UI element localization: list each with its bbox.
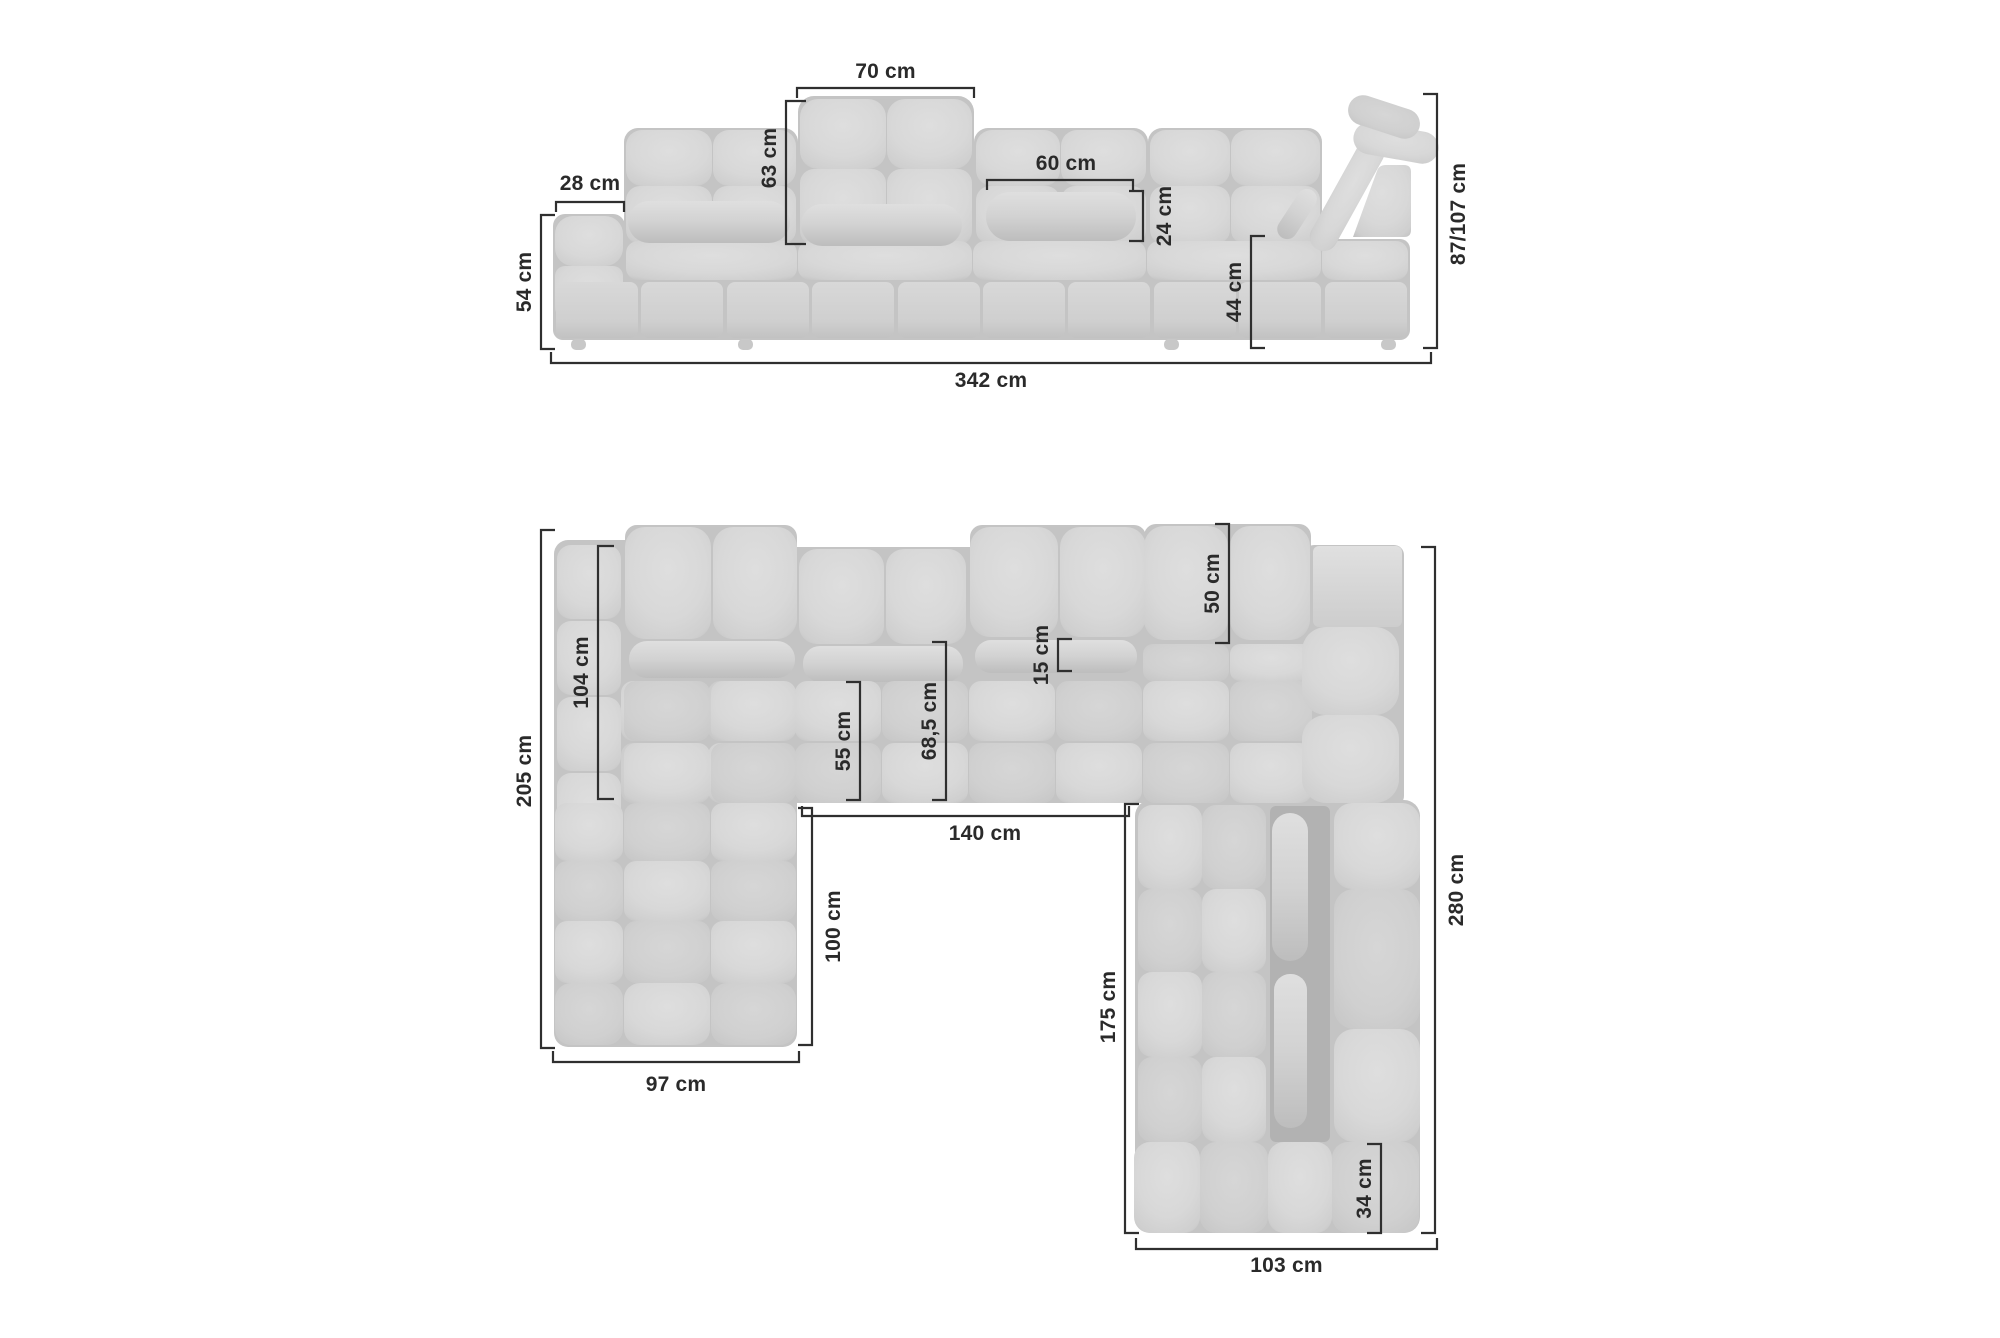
svg-text:54 cm: 54 cm xyxy=(513,252,536,313)
svg-text:70 cm: 70 cm xyxy=(855,60,916,83)
svg-text:175 cm: 175 cm xyxy=(1097,971,1120,1043)
svg-text:68,5 cm: 68,5 cm xyxy=(918,682,941,760)
svg-text:34 cm: 34 cm xyxy=(1353,1158,1376,1219)
svg-text:63 cm: 63 cm xyxy=(758,128,781,189)
svg-text:87/107 cm: 87/107 cm xyxy=(1447,163,1470,265)
svg-text:205 cm: 205 cm xyxy=(513,735,536,807)
svg-text:97 cm: 97 cm xyxy=(646,1073,707,1096)
svg-text:342 cm: 342 cm xyxy=(955,369,1027,392)
svg-text:280 cm: 280 cm xyxy=(1445,854,1468,926)
svg-text:50 cm: 50 cm xyxy=(1201,553,1224,614)
svg-text:24 cm: 24 cm xyxy=(1153,186,1176,247)
svg-text:103 cm: 103 cm xyxy=(1250,1254,1322,1277)
svg-text:100 cm: 100 cm xyxy=(822,890,845,962)
svg-text:60 cm: 60 cm xyxy=(1036,152,1097,175)
svg-text:140 cm: 140 cm xyxy=(949,822,1021,845)
svg-text:55 cm: 55 cm xyxy=(832,711,855,772)
svg-text:44 cm: 44 cm xyxy=(1223,262,1246,323)
svg-text:28 cm: 28 cm xyxy=(560,172,621,195)
svg-text:104 cm: 104 cm xyxy=(570,636,593,708)
svg-text:15 cm: 15 cm xyxy=(1030,625,1053,686)
